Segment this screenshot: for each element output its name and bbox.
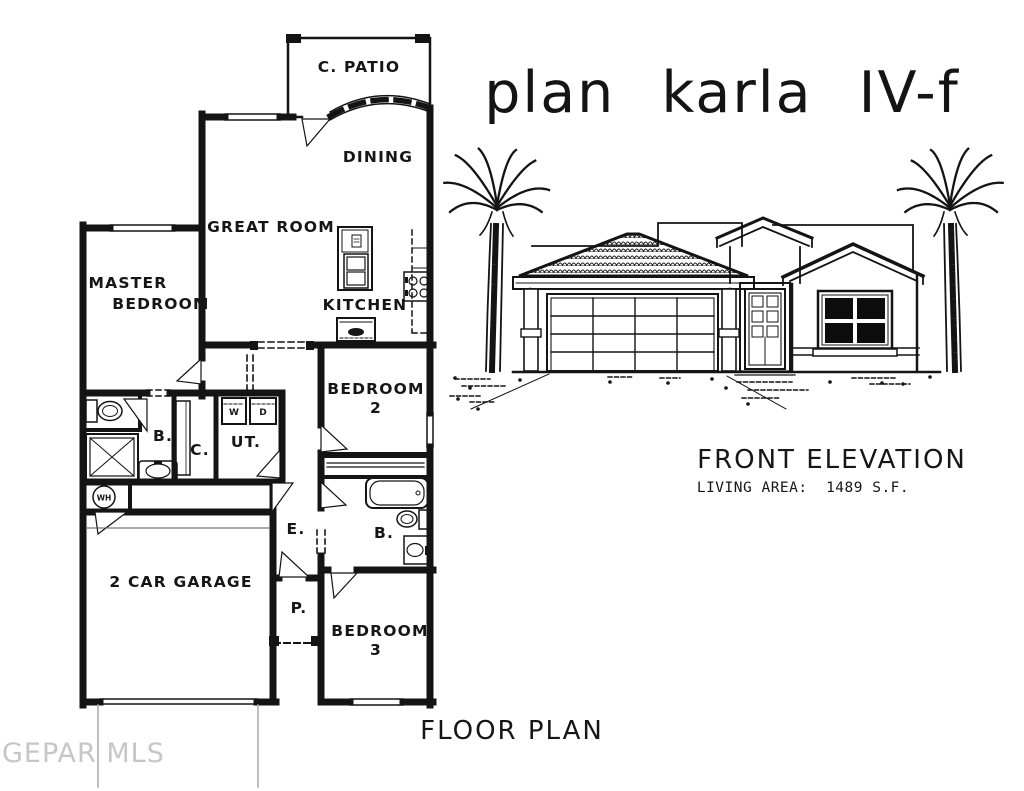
bath2-fixtures (366, 478, 430, 564)
washer-label: W (229, 408, 239, 418)
dryer-label: D (259, 408, 266, 418)
ground-dots (453, 375, 932, 411)
room-label-bedroom2-2: 2 (370, 399, 382, 417)
room-label-master-2: BEDROOM (112, 295, 209, 313)
room-label-bath2: B. (374, 524, 394, 542)
garage-door (547, 294, 718, 371)
room-label-porch: P. (291, 599, 308, 617)
room-label-closet: C. (190, 441, 210, 459)
room-label-utility: UT. (231, 433, 261, 451)
front-window (813, 291, 897, 356)
room-label-dining: DINING (343, 148, 413, 166)
kitchen-fixtures (337, 227, 430, 341)
room-label-bedroom3-1: BEDROOM (331, 622, 428, 640)
elevation-caption: FRONT ELEVATION (697, 445, 967, 475)
front-door (745, 289, 785, 369)
room-label-great-room: GREAT ROOM (207, 218, 335, 236)
garage-elevation (521, 289, 739, 371)
right-gable-elevation (783, 244, 923, 371)
water-heater-label: WH (97, 494, 112, 503)
living-area-note: LIVING AREA: 1489 S.F. (697, 480, 909, 496)
elevation-drawing (443, 148, 1004, 411)
room-label-bedroom3-2: 3 (370, 641, 382, 659)
mls-watermark: GEPAR MLS (2, 738, 165, 769)
plan-sheet: C. PATIO DINING GREAT ROOM MASTER BEDROO… (0, 0, 1024, 791)
room-label-master-1: MASTER (89, 274, 168, 292)
room-label-patio: C. PATIO (318, 58, 401, 76)
room-label-entry: E. (287, 520, 306, 538)
room-label-bedroom2-1: BEDROOM (327, 380, 424, 398)
room-label-garage: 2 CAR GARAGE (109, 573, 252, 591)
room-label-master-bath: B. (153, 427, 173, 445)
ground (450, 372, 940, 411)
room-label-kitchen: KITCHEN (323, 296, 408, 314)
arched-window-wall (330, 96, 430, 120)
floor-plan-caption: FLOOR PLAN (420, 716, 604, 746)
page-title: plan karla IV-f (484, 60, 960, 126)
